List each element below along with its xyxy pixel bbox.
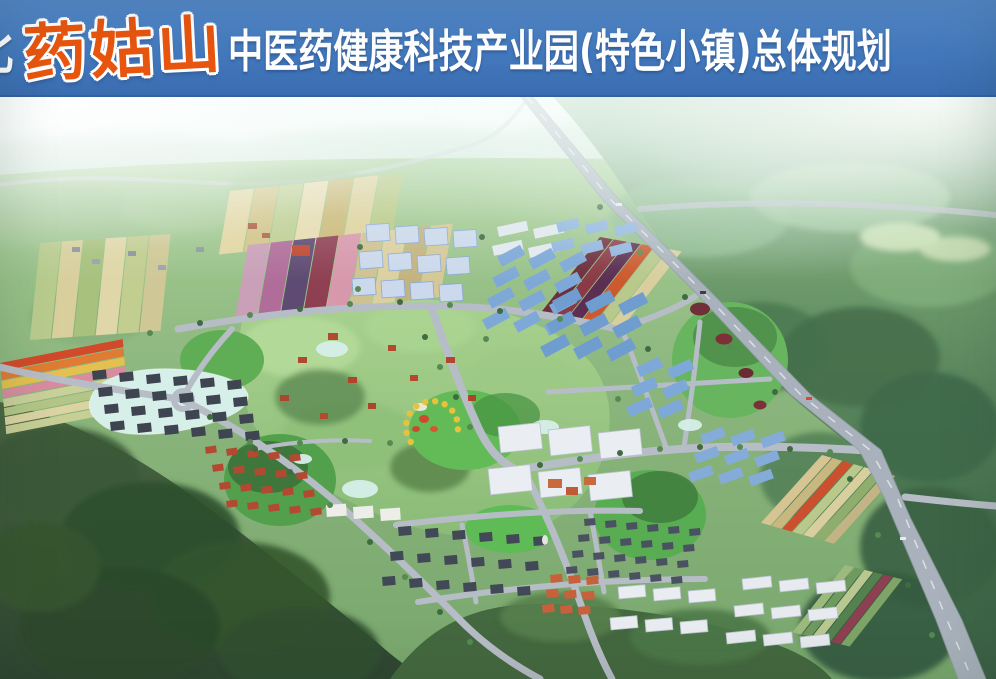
pond: [342, 480, 378, 498]
masterplan-rendering: [0, 97, 996, 679]
factory-blue-sheds-E: [688, 427, 786, 487]
banner-brand-text: 药姑山: [21, 0, 226, 95]
pond: [316, 341, 348, 357]
billboard-photo: 湖北 药姑山 中医药健康科技产业园(特色小镇)总体规划: [0, 0, 996, 679]
banner-title-text: 中医药健康科技产业园(特色小镇)总体规划: [228, 15, 892, 80]
masterplan-svg: [0, 97, 996, 679]
factory-blue-sheds-C: [540, 288, 648, 362]
white-offices-east: [726, 576, 846, 648]
pond: [678, 419, 702, 431]
title-banner: 湖北 药姑山 中医药健康科技产业园(特色小镇)总体规划: [0, 0, 996, 98]
banner-region-text: 湖北: [0, 12, 15, 84]
